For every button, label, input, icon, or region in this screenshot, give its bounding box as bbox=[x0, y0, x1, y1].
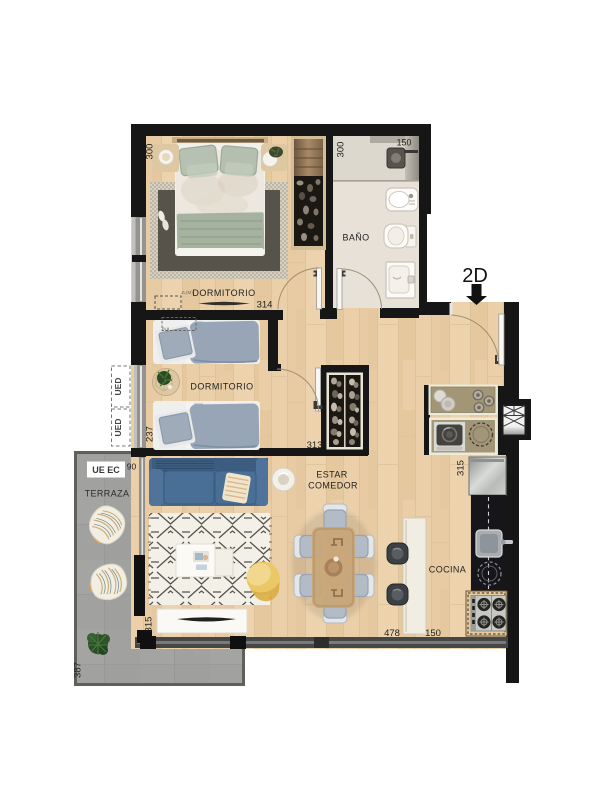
svg-text:315: 315 bbox=[144, 617, 155, 633]
svg-text:150: 150 bbox=[397, 138, 412, 148]
svg-text:BAÑO: BAÑO bbox=[342, 233, 369, 243]
svg-text:UED: UED bbox=[113, 378, 123, 396]
svg-text:DORMITORIO: DORMITORIO bbox=[192, 288, 255, 298]
svg-text:UE EC: UE EC bbox=[92, 465, 120, 475]
svg-text:300: 300 bbox=[145, 144, 156, 160]
svg-text:TERRAZA: TERRAZA bbox=[85, 489, 130, 499]
svg-text:314: 314 bbox=[257, 300, 273, 311]
svg-text:UED: UED bbox=[113, 419, 123, 437]
svg-text:COMEDOR: COMEDOR bbox=[308, 481, 358, 491]
svg-text:0UI: 0UI bbox=[162, 327, 169, 332]
svg-text:2D: 2D bbox=[462, 265, 488, 287]
svg-text:300: 300 bbox=[336, 142, 347, 158]
svg-text:237: 237 bbox=[145, 426, 156, 442]
svg-text:150: 150 bbox=[425, 628, 441, 639]
svg-text:387: 387 bbox=[73, 662, 84, 678]
svg-text:JL(M): JL(M) bbox=[181, 290, 193, 295]
svg-text:90: 90 bbox=[127, 462, 137, 472]
svg-text:COCINA: COCINA bbox=[429, 565, 466, 575]
svg-text:DORMITORIO: DORMITORIO bbox=[190, 382, 253, 392]
svg-text:478: 478 bbox=[384, 628, 400, 639]
svg-text:ESTAR: ESTAR bbox=[316, 470, 347, 480]
svg-text:313: 313 bbox=[307, 440, 323, 451]
svg-text:315: 315 bbox=[456, 460, 467, 476]
